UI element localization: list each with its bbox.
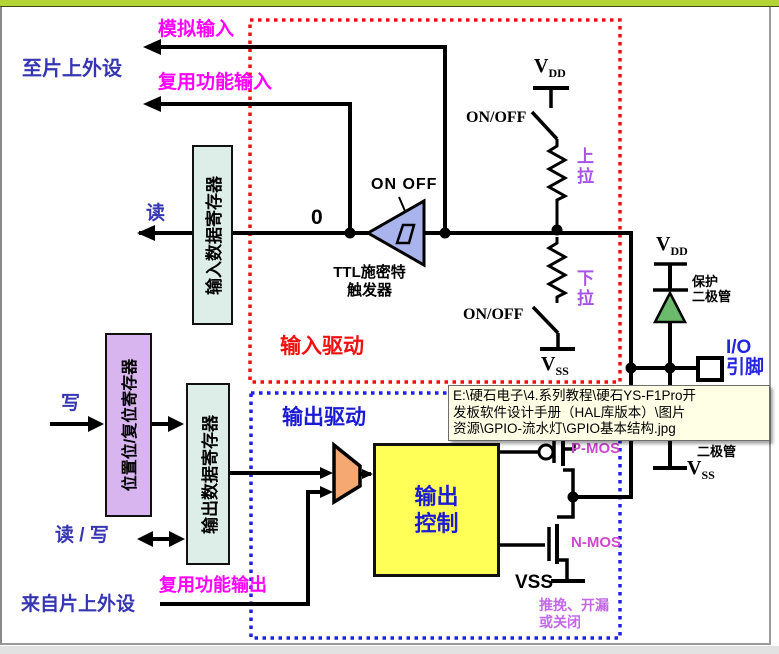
write-label: 写 [61, 393, 80, 414]
bit-set-reset-register-box: 位置位/复位寄存器 [105, 333, 152, 517]
junction-dot [665, 363, 676, 374]
to-peripherals-label: 至片上外设 [22, 58, 122, 80]
output-driver-title: 输出驱动 [282, 406, 366, 430]
vss-sub: SS [555, 364, 568, 378]
output-mode-line2: 或关闭 [539, 614, 609, 631]
output-data-register-label: 输出数据寄存器 [196, 415, 221, 534]
pmos-label: P-MOS [571, 441, 620, 458]
io-pin-line1: I/O [726, 338, 764, 358]
protection-diode-label: 保护 二极管 [692, 274, 731, 305]
output-data-register-box: 输出数据寄存器 [186, 383, 230, 565]
from-peripherals-label: 来自片上外设 [21, 594, 135, 615]
read-write-label: 读 / 写 [55, 525, 109, 546]
pulldown-switch-arm [533, 307, 558, 333]
mux-out-arrowhead [362, 469, 373, 479]
schmitt-triangle-icon [368, 201, 424, 265]
junction-dot [345, 228, 356, 239]
mux-in2-arrowhead [320, 486, 333, 498]
input-driver-title: 输入驱动 [280, 335, 364, 359]
vdd-sub: DD [670, 244, 687, 258]
pullup-on-off-label: ON/OFF [466, 109, 526, 127]
vdd-sub: DD [548, 66, 565, 80]
read-label: 读 [146, 203, 165, 224]
output-mode-label: 推挽、开漏 或关闭 [539, 597, 609, 630]
trigger-on-off-label: ON OFF [371, 176, 437, 194]
vss-v: V [541, 353, 555, 375]
pull-down-label: 下拉 [574, 269, 593, 309]
junction-dot [440, 228, 451, 239]
junction-dot [626, 363, 637, 374]
file-path-tooltip: E:\硬石电子\4.系列教程\硬石YS-F1Pro开 发板软件设计手册（HAL库… [448, 385, 770, 441]
output-control-line1: 输出 [414, 483, 458, 511]
mux-trapezoid-icon [334, 445, 360, 502]
pull-up-label: 上拉 [574, 147, 593, 187]
pmos-bubble-icon [539, 445, 553, 459]
diode-triangle-icon [655, 293, 685, 322]
output-control-line2: 控制 [414, 510, 458, 538]
analog-arrowhead [143, 39, 161, 55]
pullup-switch-arm [532, 112, 557, 139]
vdd-v: V [534, 55, 548, 77]
protection-diode-line1: 保护 [692, 274, 731, 289]
gpio-structure-diagram: 输入数据寄存器 位置位/复位寄存器 输出数据寄存器 输出 控制 至片上外设 模拟… [0, 0, 779, 654]
output-mode-line1: 推挽、开漏 [539, 597, 609, 614]
vdd-v: V [656, 233, 670, 255]
schmitt-name-line2: 触发器 [312, 282, 427, 300]
analog-input-label: 模拟输入 [158, 19, 234, 40]
protection-diode-line2: 二极管 [692, 289, 731, 304]
bit-set-reset-register-label: 位置位/复位寄存器 [117, 359, 141, 491]
nmos-label: N-MOS [571, 535, 621, 552]
vss-sub: SS [701, 468, 714, 482]
vss-v: V [687, 457, 701, 479]
schmitt-name-label: TTL施密特 触发器 [312, 264, 427, 299]
rw-left-arrowhead [137, 531, 153, 547]
io-pin-line2: 引脚 [726, 358, 764, 378]
mux-in1-arrowhead [320, 467, 333, 479]
bsrr-odr-arrowhead [168, 416, 184, 432]
rw-right-arrowhead [169, 531, 185, 547]
vss-nmos-label: VSS [515, 572, 553, 593]
af-input-label: 复用功能输入 [158, 72, 272, 93]
tooltip-line3: 资源\GPIO-流水灯\GPIO基本结构.jpg [453, 421, 765, 438]
af-output-label: 复用功能输出 [159, 575, 267, 595]
pulldown-resistor [549, 237, 565, 303]
pulldown-on-off-label: ON/OFF [463, 306, 523, 324]
tooltip-line2: 发板软件设计手册（HAL库版本）\图片 [453, 405, 765, 422]
io-pin-square-icon [698, 358, 722, 380]
write-arrowhead [88, 416, 104, 432]
junction-dot [568, 492, 579, 503]
onoff-pointer-line [399, 197, 405, 211]
vss-right-label: VSS [687, 457, 715, 482]
read-arrowhead [137, 225, 155, 241]
vdd-top-label: VDD [534, 55, 566, 80]
vdd-right-label: VDD [656, 233, 688, 258]
af-in-arrowhead [143, 96, 161, 112]
zero-label: 0 [311, 206, 323, 230]
input-data-register-label: 输入数据寄存器 [200, 176, 225, 295]
io-pin-label: I/O 引脚 [726, 338, 764, 378]
pull-up-down-chain [532, 88, 575, 349]
input-data-register-box: 输入数据寄存器 [192, 145, 233, 325]
schmitt-trigger [368, 197, 424, 265]
output-control-box: 输出 控制 [373, 443, 500, 577]
junction-dot [552, 225, 563, 236]
schmitt-name-line1: TTL施密特 [312, 264, 427, 282]
tooltip-line1: E:\硬石电子\4.系列教程\硬石YS-F1Pro开 [453, 388, 765, 405]
vss-mid-label: VSS [541, 353, 569, 378]
pullup-resistor [549, 139, 565, 231]
